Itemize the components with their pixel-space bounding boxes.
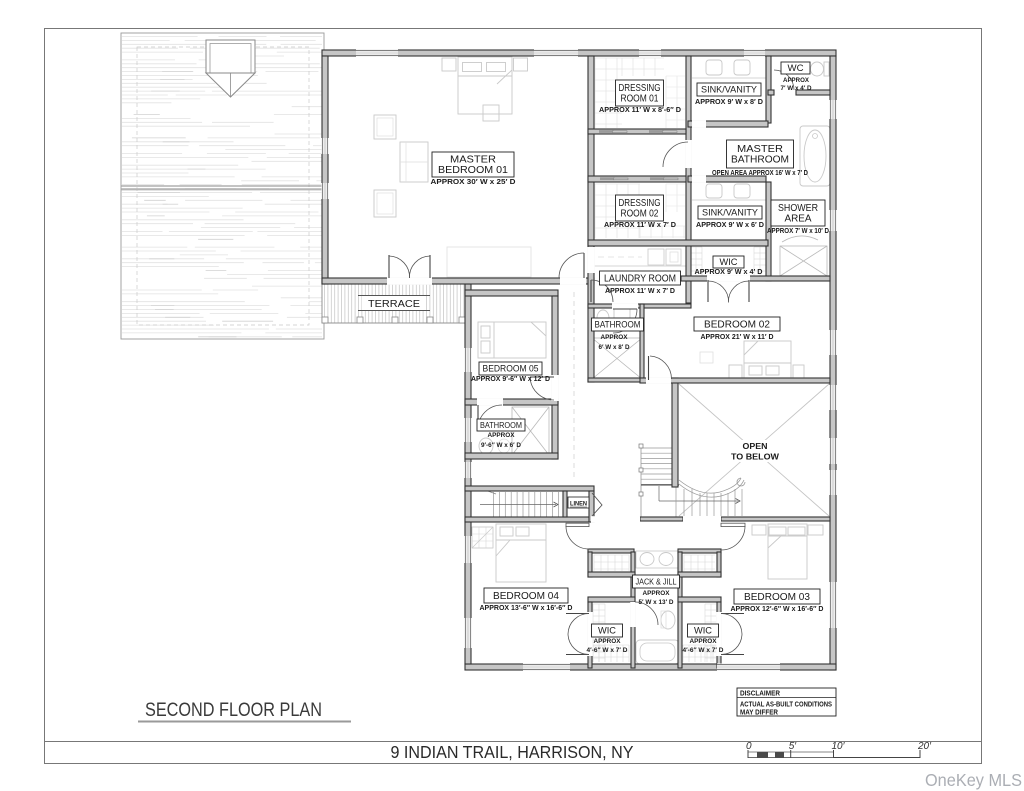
svg-text:APPROX: APPROX [601,334,629,341]
svg-text:ACTUAL AS-BUILT CONDITIONS: ACTUAL AS-BUILT CONDITIONS [740,702,832,709]
svg-text:BEDROOM 04: BEDROOM 04 [493,590,559,602]
svg-text:APPROX: APPROX [783,77,810,84]
svg-text:BEDROOM 03: BEDROOM 03 [744,591,810,603]
svg-text:APPROX 12′-6″ W x 16′-6″ D: APPROX 12′-6″ W x 16′-6″ D [731,606,824,613]
svg-text:APPROX: APPROX [594,638,622,645]
svg-text:BATHROOM: BATHROOM [595,320,641,330]
svg-text:BEDROOM 01: BEDROOM 01 [438,165,508,176]
svg-text:BATHROOM: BATHROOM [731,155,789,166]
svg-text:SECOND FLOOR PLAN: SECOND FLOOR PLAN [145,699,322,721]
svg-text:LINEN: LINEN [570,501,587,508]
svg-text:APPROX: APPROX [643,590,671,597]
svg-text:WIC: WIC [598,626,616,637]
svg-text:OPEN AREA APPROX 16′ W x 7′ D: OPEN AREA APPROX 16′ W x 7′ D [712,170,808,177]
svg-text:WIC: WIC [720,257,738,268]
svg-text:10′: 10′ [832,741,846,752]
svg-text:APPROX 11′ W x 8′-6″ D: APPROX 11′ W x 8′-6″ D [599,107,681,114]
svg-text:APPROX 9′ W x 4′ D: APPROX 9′ W x 4′ D [695,269,763,276]
svg-text:TO BELOW: TO BELOW [731,453,779,462]
svg-text:LAUNDRY ROOM: LAUNDRY ROOM [604,273,676,284]
svg-text:ROOM 02: ROOM 02 [621,209,659,220]
svg-text:APPROX 11′ W x 7′ D: APPROX 11′ W x 7′ D [605,288,675,295]
svg-text:OPEN: OPEN [743,442,768,451]
svg-text:DISCLAIMER: DISCLAIMER [740,691,780,698]
svg-text:APPROX 9′-6″ W x 12′ D: APPROX 9′-6″ W x 12′ D [471,376,550,383]
svg-text:WC: WC [788,63,804,74]
svg-text:OneKey MLS: OneKey MLS [925,770,1022,790]
svg-text:7′ W x 4′ D: 7′ W x 4′ D [781,85,812,92]
svg-text:APPROX 11′ W x 7′ D: APPROX 11′ W x 7′ D [604,222,676,229]
svg-text:BEDROOM 05: BEDROOM 05 [483,364,539,375]
svg-text:5′ W x 13′ D: 5′ W x 13′ D [639,599,674,606]
svg-text:TERRACE: TERRACE [368,299,420,310]
svg-text:6′ W x 8′ D: 6′ W x 8′ D [599,344,630,351]
svg-text:APPROX: APPROX [690,638,718,645]
svg-text:BEDROOM 02: BEDROOM 02 [704,319,770,331]
svg-text:APPROX 13′-6″ W x 16′-6″ D: APPROX 13′-6″ W x 16′-6″ D [480,605,573,612]
svg-text:4′-6″ W x 7′ D: 4′-6″ W x 7′ D [587,647,628,654]
svg-text:4′-6″ W x 7′ D: 4′-6″ W x 7′ D [683,647,724,654]
svg-text:SINK/VANITY: SINK/VANITY [702,208,759,219]
svg-text:JACK & JILL: JACK & JILL [636,576,677,586]
svg-text:WIC: WIC [694,626,712,637]
svg-text:APPROX 7′ W x 10′ D: APPROX 7′ W x 10′ D [767,228,829,235]
svg-text:20′: 20′ [917,741,932,752]
svg-text:BATHROOM: BATHROOM [480,420,522,430]
svg-text:ROOM 01: ROOM 01 [621,94,659,105]
svg-text:5′: 5′ [789,741,798,752]
svg-text:9′-6″ W x 6′ D: 9′-6″ W x 6′ D [481,442,521,449]
svg-text:APPROX 21′ W x 11′ D: APPROX 21′ W x 11′ D [701,334,774,341]
svg-text:APPROX 9′ W x 8′ D: APPROX 9′ W x 8′ D [695,99,763,106]
svg-text:9 INDIAN TRAIL, HARRISON, NY: 9 INDIAN TRAIL, HARRISON, NY [391,742,634,762]
svg-text:0: 0 [746,741,752,752]
svg-text:SINK/VANITY: SINK/VANITY [701,85,758,96]
svg-text:MAY DIFFER: MAY DIFFER [740,710,778,717]
svg-text:AREA: AREA [785,214,812,225]
svg-text:APPROX: APPROX [488,432,516,439]
svg-text:APPROX 30′ W x 25′ D: APPROX 30′ W x 25′ D [431,179,516,186]
svg-text:APPROX 9′ W x 6′ D: APPROX 9′ W x 6′ D [696,222,764,229]
